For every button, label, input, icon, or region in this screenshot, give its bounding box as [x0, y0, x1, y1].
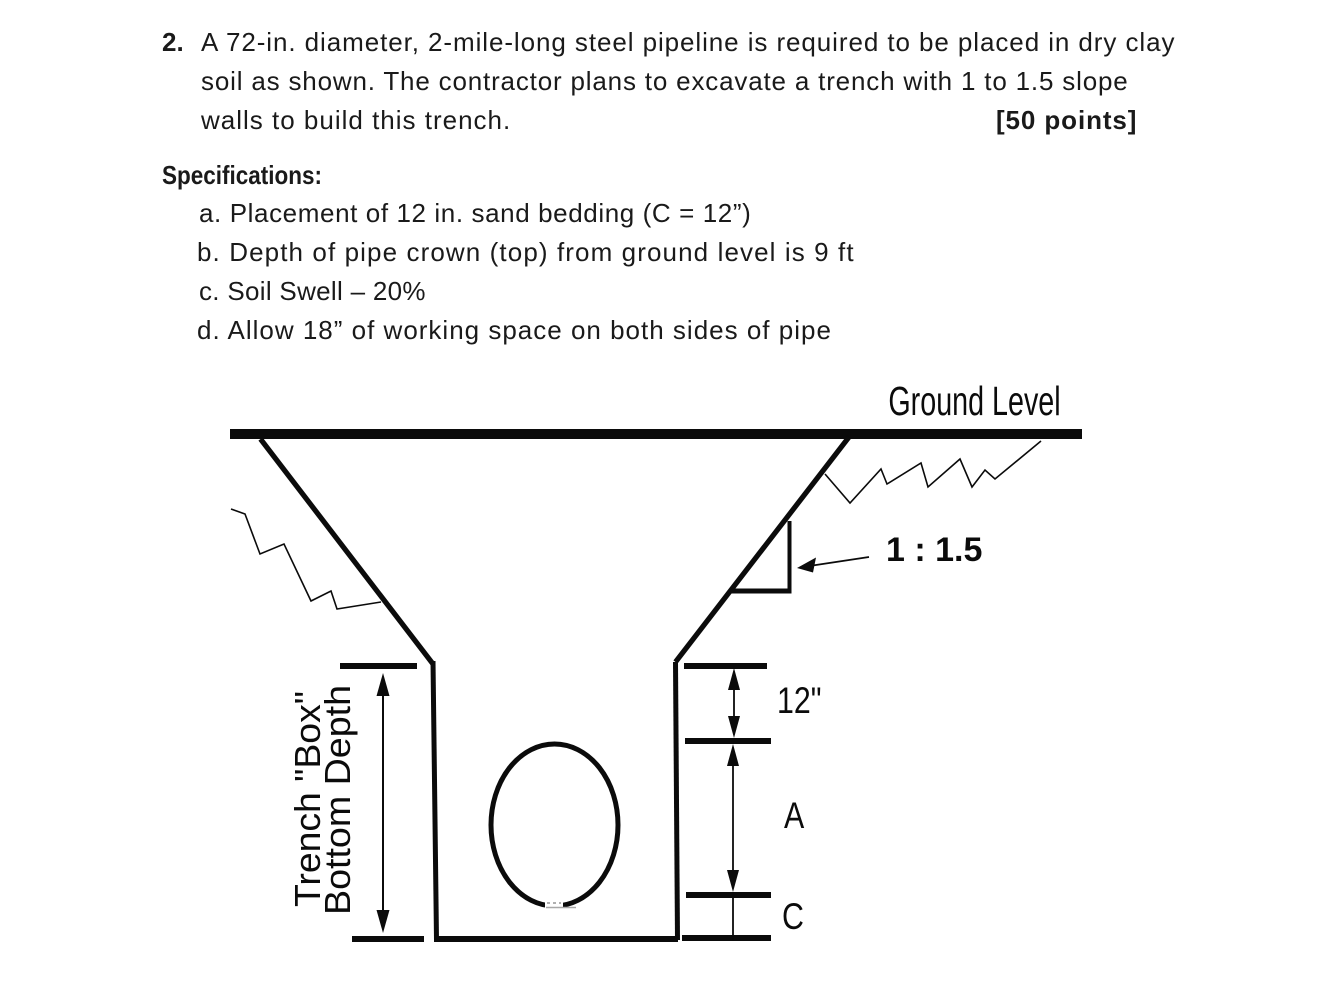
svg-text:1 : 1.5: 1 : 1.5	[886, 531, 982, 569]
svg-text:Bottom Depth: Bottom Depth	[317, 685, 358, 915]
svg-text:12": 12"	[777, 680, 822, 722]
svg-text:C: C	[782, 896, 804, 938]
svg-text:Ground Level: Ground Level	[888, 379, 1060, 424]
svg-text:A: A	[784, 795, 805, 837]
